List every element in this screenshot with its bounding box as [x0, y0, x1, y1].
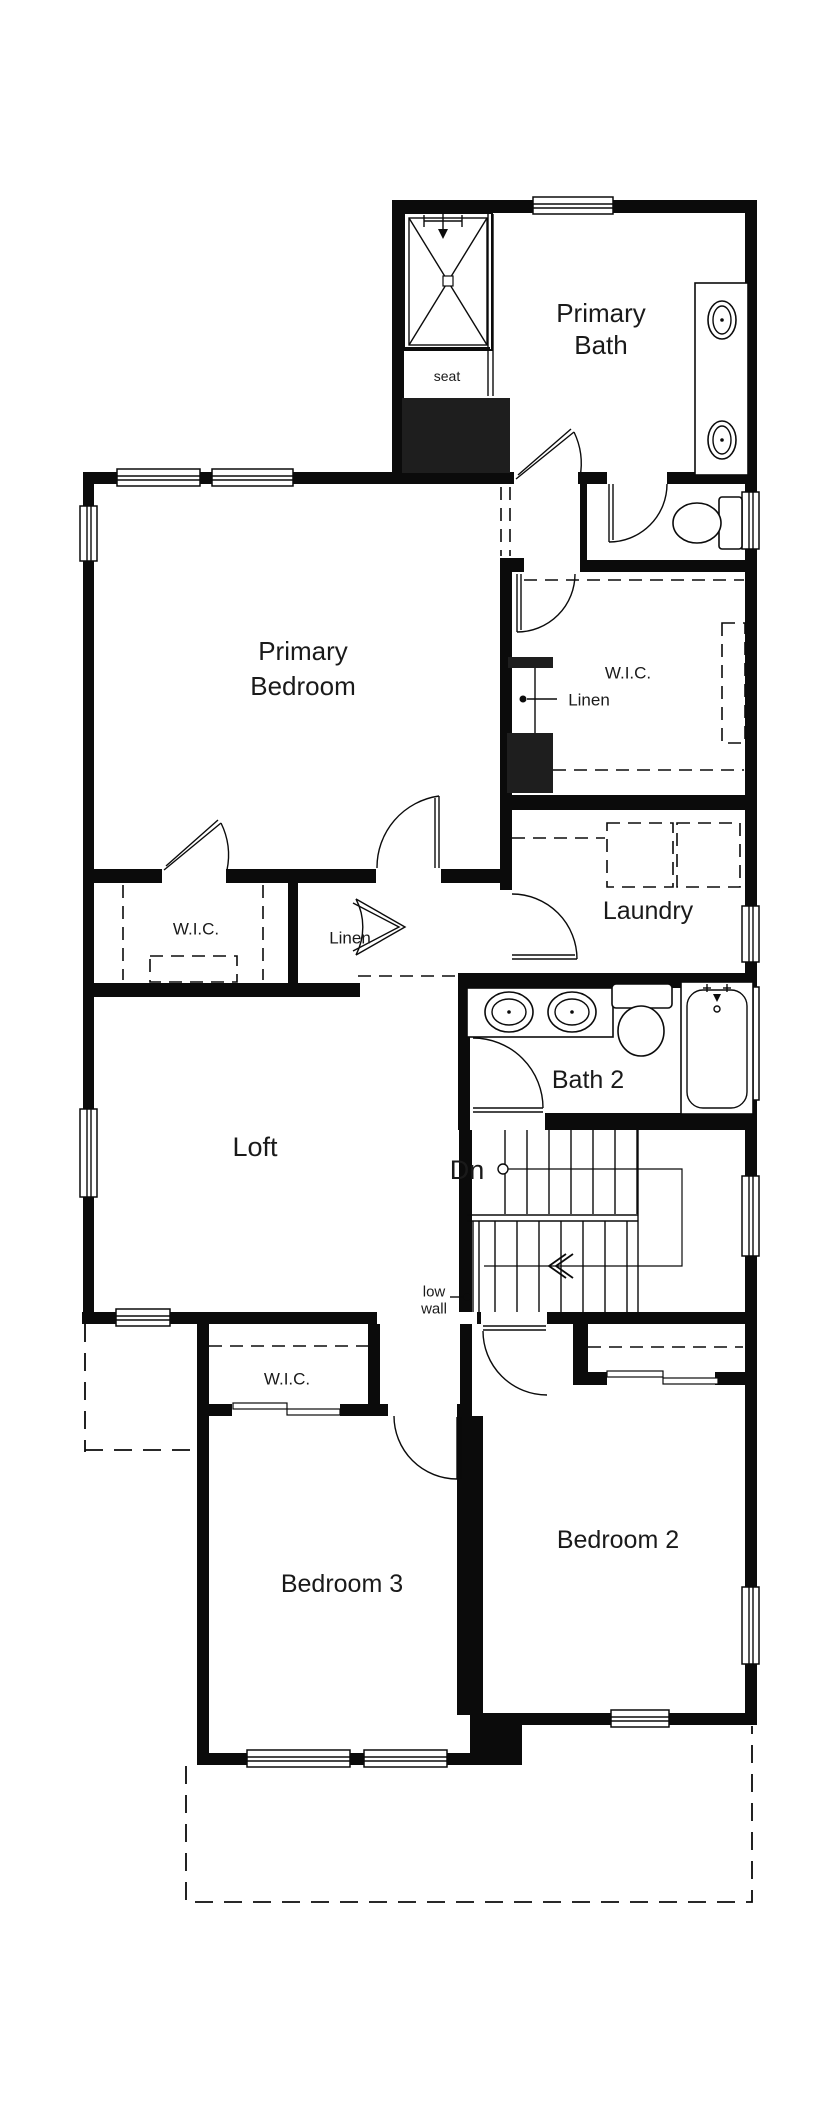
floor-plan-drawing: Primary Bath seat Primary Bedroom W.I.C.…	[0, 0, 840, 2114]
stair-treads-upper	[505, 1130, 637, 1214]
loft-label: Loft	[232, 1132, 278, 1162]
low-wall-label-line2: wall	[420, 1301, 447, 1318]
window-stairs-right	[742, 1176, 759, 1256]
primary-bath-label-line1: Primary	[556, 298, 646, 328]
window-bedroom2-bottom	[611, 1710, 669, 1727]
archway-dashes	[501, 487, 510, 556]
window-bedroom-top-2	[212, 469, 293, 486]
linen-hall-label: Linen	[329, 929, 371, 948]
linen-leader	[520, 696, 558, 703]
door-wic-primary	[164, 820, 229, 870]
primary-bath-label-line2: Bath	[574, 330, 628, 360]
floor-plan-page: Primary Bath seat Primary Bedroom W.I.C.…	[0, 0, 840, 2114]
linen-header	[508, 657, 553, 668]
sink-icon	[548, 992, 596, 1032]
wic-bedroom3-label: W.I.C.	[264, 1370, 310, 1389]
dryer	[677, 823, 740, 887]
door-wic-bath	[517, 574, 575, 632]
low-wall-label-line1: low	[423, 1284, 446, 1301]
window-bath-top	[533, 197, 613, 214]
door-bedroom3	[394, 1416, 461, 1479]
laundry-label: Laundry	[603, 897, 694, 925]
window-bedroom2-right	[742, 1587, 759, 1664]
door-water-closet	[609, 484, 667, 542]
bedroom3-label: Bedroom 3	[281, 1570, 403, 1598]
sink-icon	[708, 301, 736, 339]
window-bedroom3-bottom-1	[247, 1750, 350, 1767]
plumbing-chases	[402, 398, 553, 793]
bath2-toilet	[612, 984, 672, 1056]
low-wall	[473, 1221, 479, 1312]
window-wc-right	[742, 492, 759, 549]
window-bedroom-top-1	[117, 469, 200, 486]
chase-linen	[507, 733, 553, 793]
window-laundry-right	[742, 906, 759, 962]
window-loft-bottom	[116, 1309, 170, 1326]
water-closet-toilet	[673, 497, 742, 549]
sliding-door-bedroom2-closet	[607, 1371, 718, 1384]
primary-bath-vanity	[695, 283, 748, 475]
window-loft-left	[80, 1109, 97, 1197]
door-openings	[162, 470, 667, 1418]
door-laundry	[512, 894, 577, 959]
wic-primary-label: W.I.C.	[173, 920, 219, 939]
seat-label: seat	[434, 368, 461, 384]
sink-icon	[708, 421, 736, 459]
chase-shower	[402, 398, 510, 473]
wic-bath-label: W.I.C.	[605, 664, 651, 683]
bedroom2-label: Bedroom 2	[557, 1526, 679, 1554]
bathtub	[681, 982, 753, 1114]
door-bath2	[473, 1038, 543, 1112]
stairs	[467, 1130, 682, 1312]
door-primary-bedroom	[377, 796, 439, 868]
laundry-appliances	[512, 823, 740, 887]
door-bedroom2	[483, 1326, 547, 1395]
sink-icon	[485, 992, 533, 1032]
window-bedroom-left	[80, 506, 97, 561]
shower-head-icon	[424, 213, 462, 239]
linen-bath-label: Linen	[568, 691, 610, 710]
primary-bedroom-label-line1: Primary	[258, 636, 348, 666]
washer	[607, 823, 673, 887]
window-bedroom3-bottom-2	[364, 1750, 447, 1767]
stairs-down-label: Dn	[450, 1155, 485, 1185]
primary-bedroom-label-line2: Bedroom	[250, 671, 356, 701]
bath2-label: Bath 2	[552, 1066, 624, 1094]
